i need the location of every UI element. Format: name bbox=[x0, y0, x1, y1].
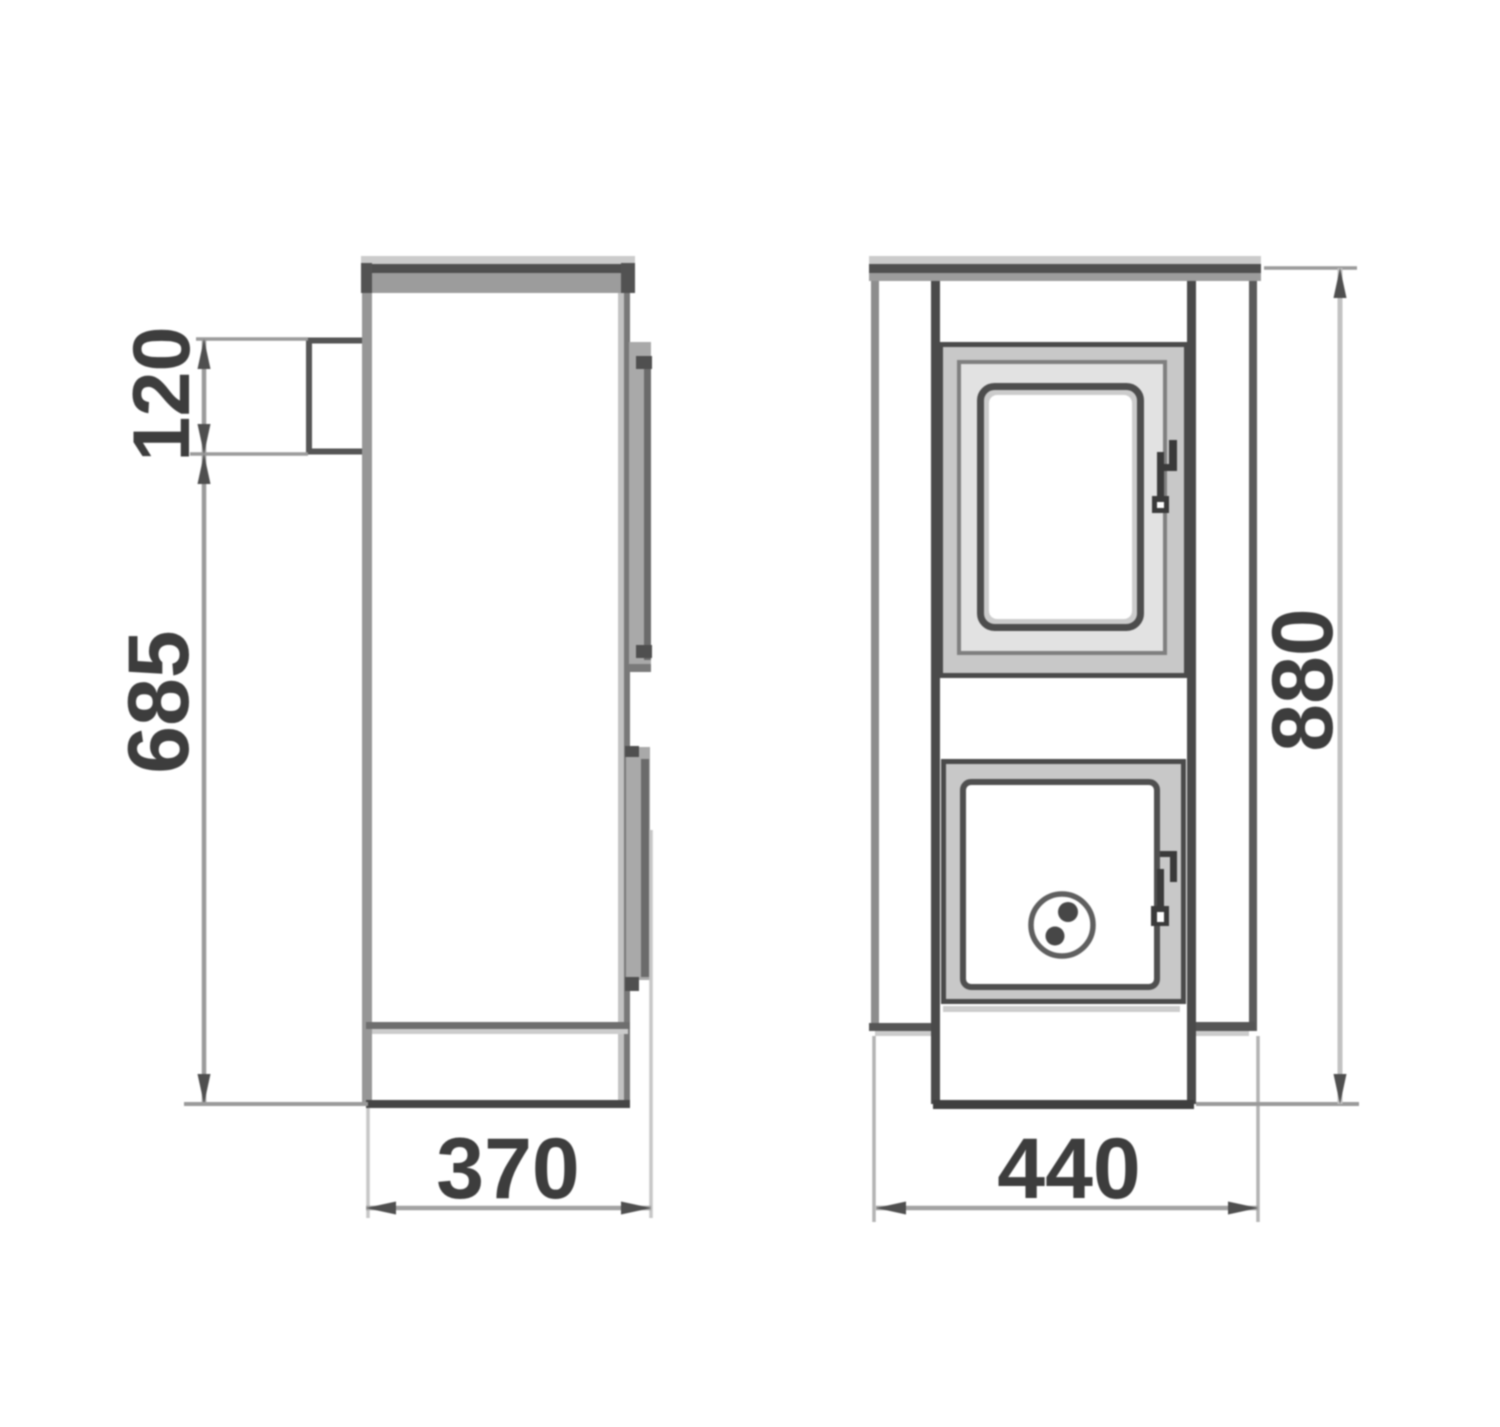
svg-text:880: 880 bbox=[1255, 608, 1351, 752]
svg-text:685: 685 bbox=[111, 630, 207, 774]
svg-text:120: 120 bbox=[117, 326, 207, 461]
svg-text:440: 440 bbox=[997, 1121, 1141, 1217]
svg-text:370: 370 bbox=[436, 1121, 580, 1217]
